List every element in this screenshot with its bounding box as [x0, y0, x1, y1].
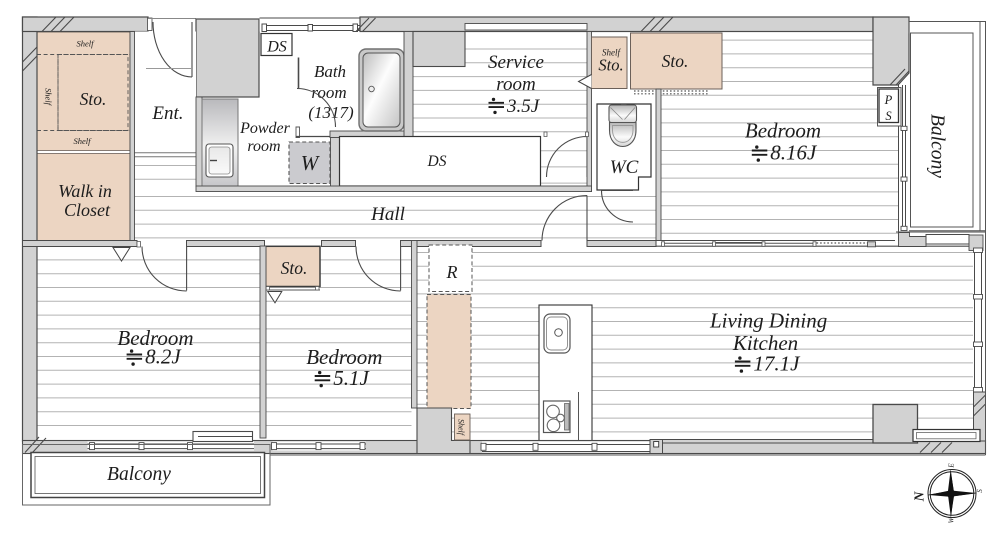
svg-text:Bedroom: Bedroom — [745, 118, 821, 142]
svg-text:room: room — [247, 138, 280, 155]
svg-text:3.5J: 3.5J — [506, 96, 541, 117]
svg-text:DS: DS — [266, 39, 287, 56]
svg-text:W: W — [301, 151, 321, 175]
svg-text:17.1J: 17.1J — [753, 352, 801, 376]
svg-text:Service: Service — [488, 52, 544, 73]
svg-text:8.16J: 8.16J — [770, 141, 818, 165]
svg-text:Walk in: Walk in — [58, 181, 112, 201]
svg-text:Bath: Bath — [314, 62, 346, 81]
svg-text:Hall: Hall — [370, 204, 405, 225]
svg-text:Sto.: Sto. — [80, 89, 107, 109]
svg-text:R: R — [446, 262, 458, 282]
svg-text:S: S — [976, 489, 984, 493]
svg-text:Closet: Closet — [64, 200, 111, 220]
svg-text:Shelf: Shelf — [74, 136, 93, 146]
svg-text:Balcony: Balcony — [927, 114, 948, 178]
svg-text:Ent.: Ent. — [151, 103, 183, 124]
svg-text:DS: DS — [427, 153, 447, 170]
svg-text:Sto.: Sto. — [662, 51, 689, 71]
svg-text:5.1J: 5.1J — [333, 366, 370, 390]
svg-text:Sto.: Sto. — [281, 258, 308, 278]
svg-text:S: S — [885, 109, 892, 123]
svg-text:Living Dining: Living Dining — [709, 308, 827, 332]
svg-text:Powder: Powder — [239, 120, 291, 137]
svg-text:WC: WC — [610, 157, 639, 178]
svg-text:E: E — [948, 463, 956, 469]
svg-text:room: room — [311, 83, 346, 102]
svg-text:Shelf: Shelf — [44, 88, 54, 107]
svg-text:N: N — [912, 490, 927, 502]
svg-text:Balcony: Balcony — [107, 464, 171, 485]
svg-text:8.2J: 8.2J — [145, 345, 182, 369]
svg-text:P: P — [884, 93, 893, 107]
svg-text:room: room — [496, 74, 535, 95]
svg-text:Shelf: Shelf — [77, 39, 96, 49]
svg-text:(1317): (1317) — [308, 103, 354, 122]
svg-text:Sto.: Sto. — [598, 56, 623, 75]
svg-text:Shelf: Shelf — [457, 419, 466, 437]
